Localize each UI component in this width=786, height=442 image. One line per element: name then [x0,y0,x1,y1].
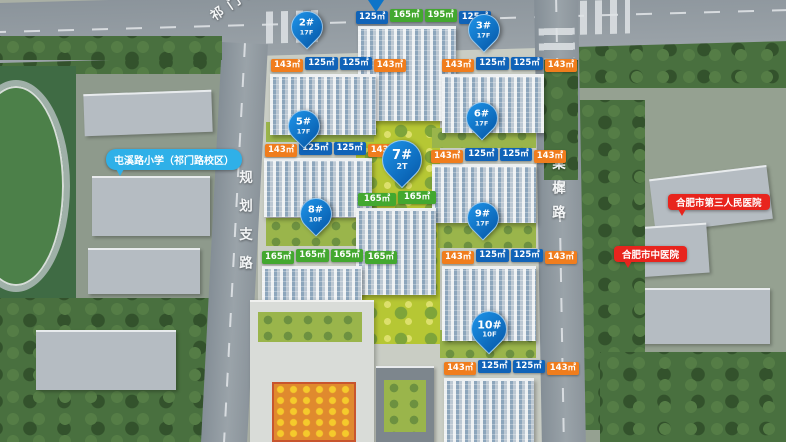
poi-hospital-third-text: 合肥市第三人民医院 [676,195,762,209]
road-name-left: 规划支路 [234,170,254,284]
unit-area-chip: 125㎡ [476,57,508,70]
poi-hospital-tcm-text: 合肥市中医院 [622,247,679,261]
building-10-tower [444,378,534,442]
streetside-trees [0,36,222,60]
unit-area-chip: 165㎡ [358,193,396,206]
pin-number: 2# [299,18,314,29]
unit-area-chip: 125㎡ [500,148,532,161]
pin-building-9[interactable]: 9# 17F [467,202,497,232]
poi-hospital-third-label[interactable]: 合肥市第三人民医院 [668,194,770,210]
pin-floors: 17F [299,29,314,36]
pin-floors: 2T [392,163,412,171]
unit-row-building-3: 143㎡ 125㎡ 125㎡ 143㎡ [442,59,577,72]
poi-hospital-tcm-label[interactable]: 合肥市中医院 [614,246,687,262]
unit-area-chip: 165㎡ [331,249,363,262]
pin-number: 6# [474,109,489,120]
unit-area-chip: 165㎡ [365,251,397,264]
school-stadium [0,66,76,298]
unit-area-chip: 143㎡ [545,59,577,72]
pin-floors: 17F [476,32,491,39]
pin-building-8[interactable]: 8# 10F [300,198,330,228]
unit-area-chip: 165㎡ [296,249,328,262]
pin-number: 9# [475,209,490,220]
school-building [88,248,200,294]
unit-area-chip: 143㎡ [534,150,566,163]
pin-building-6[interactable]: 6# 17F [466,102,496,132]
unit-area-chip: 125㎡ [513,360,545,373]
pin-building-4-tip[interactable] [368,0,384,12]
unit-area-chip: 125㎡ [476,249,508,262]
pin-floors: 10F [308,216,323,223]
site-bottom-green [384,380,426,432]
poi-school-text: 屯溪路小学（祁门路校区） [114,152,234,167]
pin-floors: 17F [474,120,489,127]
left-bottom-building [36,330,176,390]
unit-area-chip: 125㎡ [511,249,543,262]
unit-row-building-9: 143㎡ 125㎡ 125㎡ 143㎡ [442,251,577,264]
unit-area-chip: 143㎡ [374,59,406,72]
running-track [0,80,70,292]
school-building [83,90,212,136]
pin-building-2[interactable]: 2# 17F [291,11,321,41]
pin-floors: 17F [296,128,311,135]
unit-row-building-5: 143㎡ 125㎡ 125㎡ 143㎡ [265,144,400,157]
unit-area-chip: 143㎡ [431,150,463,163]
poi-school-label[interactable]: 屯溪路小学（祁门路校区） [106,149,242,170]
unit-area-chip: 165㎡ [262,251,294,264]
kindergarten-playground [272,382,356,442]
pin-number: 3# [476,21,491,32]
unit-area-chip: 143㎡ [271,59,303,72]
unit-row-building-7: 165㎡ 165㎡ [358,193,436,206]
unit-row-building-10: 143㎡ 125㎡ 125㎡ 143㎡ [444,362,579,375]
aerial-site-plan: 祁门路 规划支路 棠樨路 屯溪路小学（祁门路校区） 合肥市第三人民医院 合肥市中… [0,0,786,442]
kindergarten-roof-garden [258,312,362,342]
unit-area-chip: 125㎡ [340,57,372,70]
unit-area-chip: 125㎡ [334,142,366,155]
poi-tail [116,169,124,176]
pin-building-10[interactable]: 10# 10F [471,311,505,345]
building-2-tower [270,74,376,135]
pin-building-7[interactable]: 7# 2T [382,140,420,178]
right-building [630,288,770,344]
school-building [92,176,210,236]
pin-floors: 10F [477,331,502,338]
unit-area-chip: 125㎡ [465,148,497,161]
poi-tail [678,209,686,216]
pin-number: 5# [296,117,311,128]
unit-area-chip: 143㎡ [265,144,297,157]
unit-area-chip: 143㎡ [444,362,476,375]
pin-building-3[interactable]: 3# 17F [468,14,498,44]
unit-row-building-2: 143㎡ 125㎡ 125㎡ 143㎡ [271,59,406,72]
pin-number: 8# [308,205,323,216]
unit-area-chip: 143㎡ [547,362,579,375]
right-bottom-trees [600,352,786,442]
unit-area-chip: 125㎡ [511,57,543,70]
pin-number: 10# [477,320,502,332]
unit-area-chip: 143㎡ [545,251,577,264]
unit-area-chip: 195㎡ [425,9,457,22]
pin-floors: 17F [475,220,490,227]
unit-area-chip: 125㎡ [478,360,510,373]
unit-area-chip: 165㎡ [398,191,436,204]
pin-number: 7# [392,149,412,163]
unit-area-chip: 165㎡ [390,9,422,22]
unit-row-building-6: 143㎡ 125㎡ 125㎡ 143㎡ [431,150,566,163]
unit-area-chip: 143㎡ [442,59,474,72]
road-name-right: 棠樨路 [547,156,567,230]
crosswalk [539,28,576,59]
poi-tail [624,261,632,268]
unit-area-chip: 143㎡ [442,251,474,264]
unit-area-chip: 125㎡ [305,57,337,70]
unit-row-building-8: 165㎡ 165㎡ 165㎡ 165㎡ [262,251,397,264]
unit-area-chip: 125㎡ [356,11,388,24]
pin-building-5[interactable]: 5# 17F [288,110,318,140]
